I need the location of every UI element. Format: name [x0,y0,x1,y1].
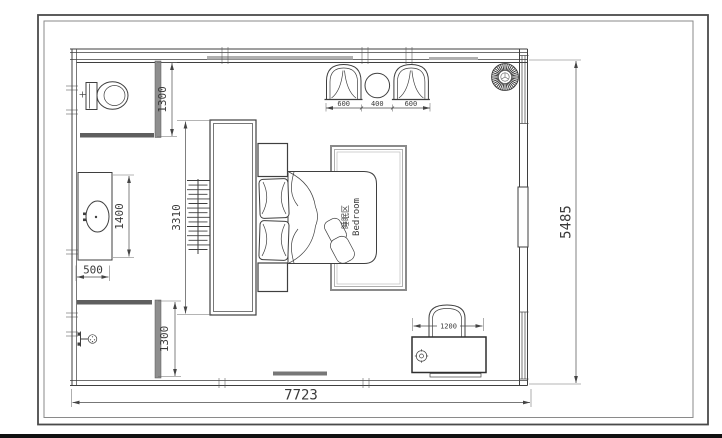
shower-head-symbol [78,332,97,347]
dim-side-table: 400 [371,100,384,108]
dim-shower-room: 1300 [158,326,171,353]
desk-mat [430,374,481,378]
toilet-symbol [80,82,129,110]
sleep-zone-label-en: Bedroom [352,198,362,236]
wardrobe-outline [210,120,256,315]
dim-wardrobe: 3310 [170,204,183,231]
pillow-bottom [259,221,289,261]
bed-area: 睡眠区 Bedroom [258,144,406,292]
vanity-counter [78,173,112,261]
armchair-left [325,65,363,100]
toilet-room-sliding-door [80,133,154,138]
door-threshold [273,372,327,376]
floor-plan-drawing: 1300 1300 [0,0,722,438]
shower-room-sliding-door [77,300,152,305]
armchair-right [392,65,430,100]
dim-toilet-room: 1300 [156,86,169,113]
desk-chair-dimension: 1200 [413,318,484,331]
toilet-room: 1300 [77,61,178,138]
seating-area: 600 400 600 [325,65,431,112]
nightstand-bottom [258,263,288,292]
floor-plan-sheet: 1300 1300 [0,0,722,438]
dim-room-width: 7723 [284,388,318,404]
screenshot-bottom-edge [0,434,722,438]
pillow-top [259,179,289,219]
dim-room-depth: 5485 [559,205,575,239]
curtain-track-right [429,57,478,60]
dim-armchair-right: 600 [405,100,418,108]
curtain-track-left [207,56,353,60]
ceiling-fan-symbol [492,64,519,91]
vanity: 1400 500 [76,173,134,282]
dim-vanity-width: 500 [83,264,103,277]
seating-dimensions: 600 400 600 [326,100,430,112]
desk-area: 1200 [412,305,486,377]
shower-room: 1300 [77,300,181,378]
dim-armchair-left: 600 [337,100,350,108]
sleep-zone-label-cn: 睡眠区 [341,205,350,229]
nightstand-top [258,144,288,177]
dim-desk-chair: 1200 [440,323,457,331]
right-wall-niche [518,187,528,247]
dim-vanity-length: 1400 [113,203,126,230]
side-table [365,73,390,98]
wardrobe: 3310 [170,120,256,315]
